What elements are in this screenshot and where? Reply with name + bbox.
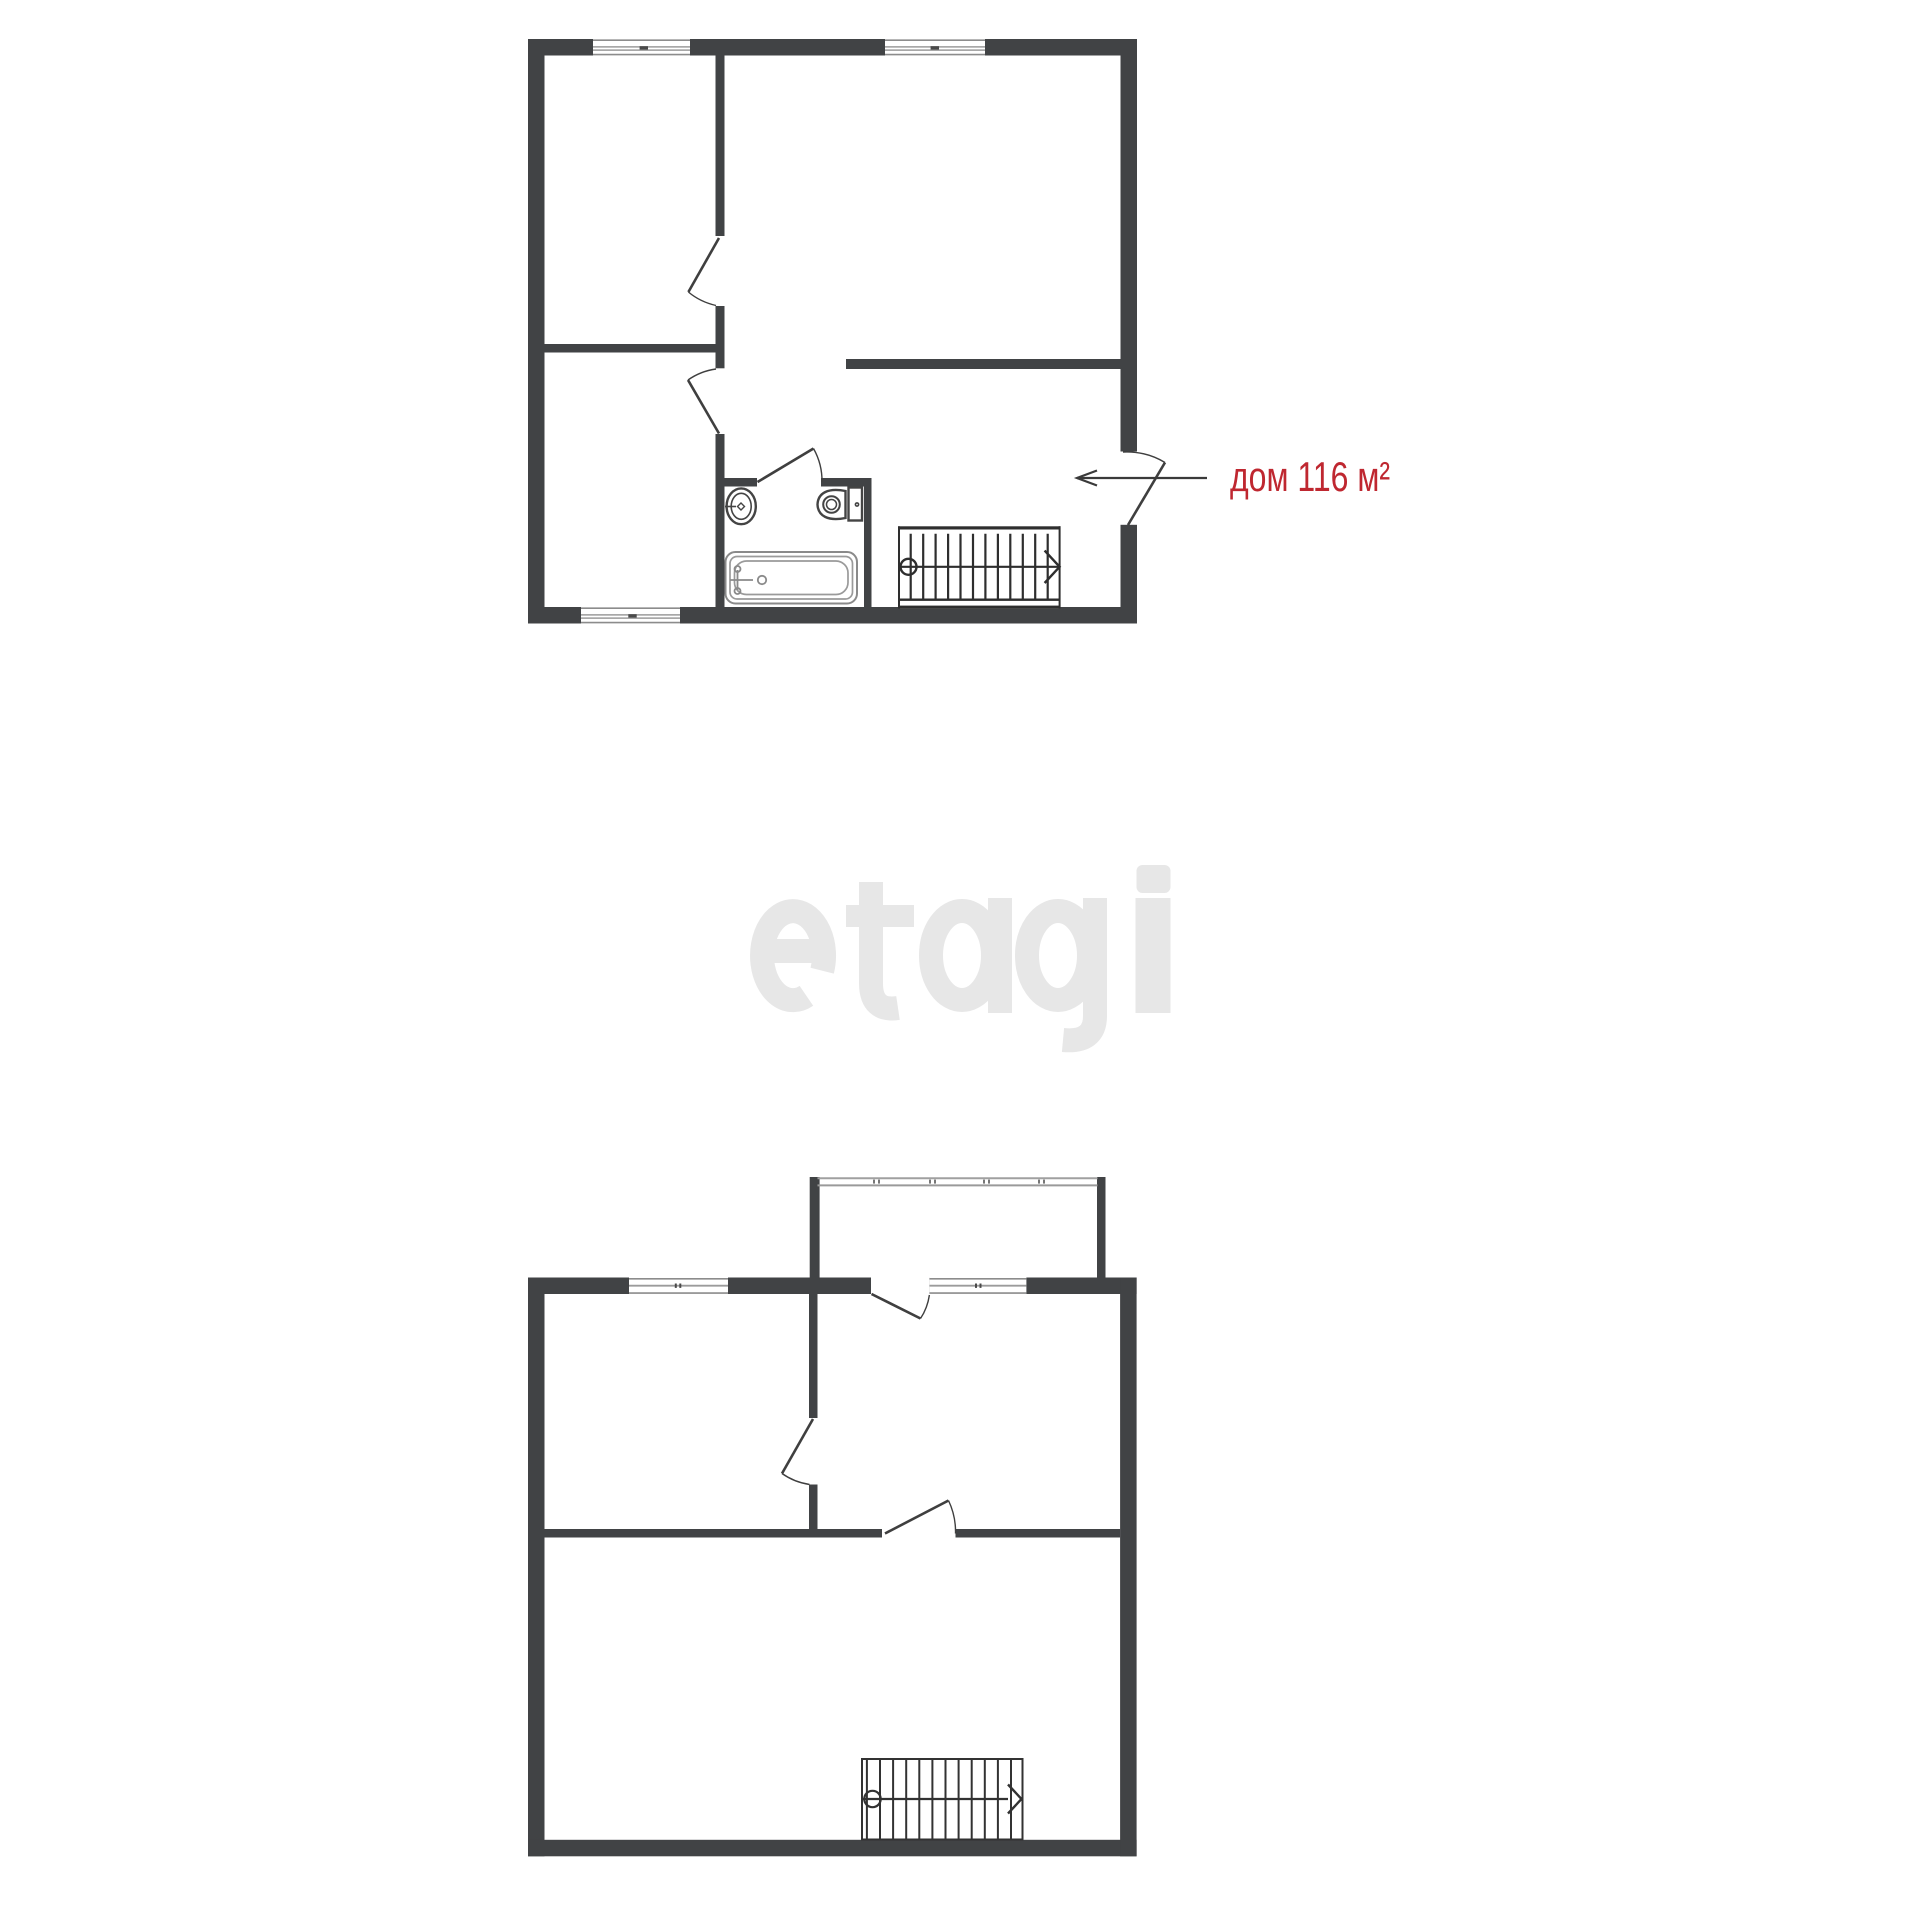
svg-text:дом 116 м²: дом 116 м² [1230,453,1390,500]
